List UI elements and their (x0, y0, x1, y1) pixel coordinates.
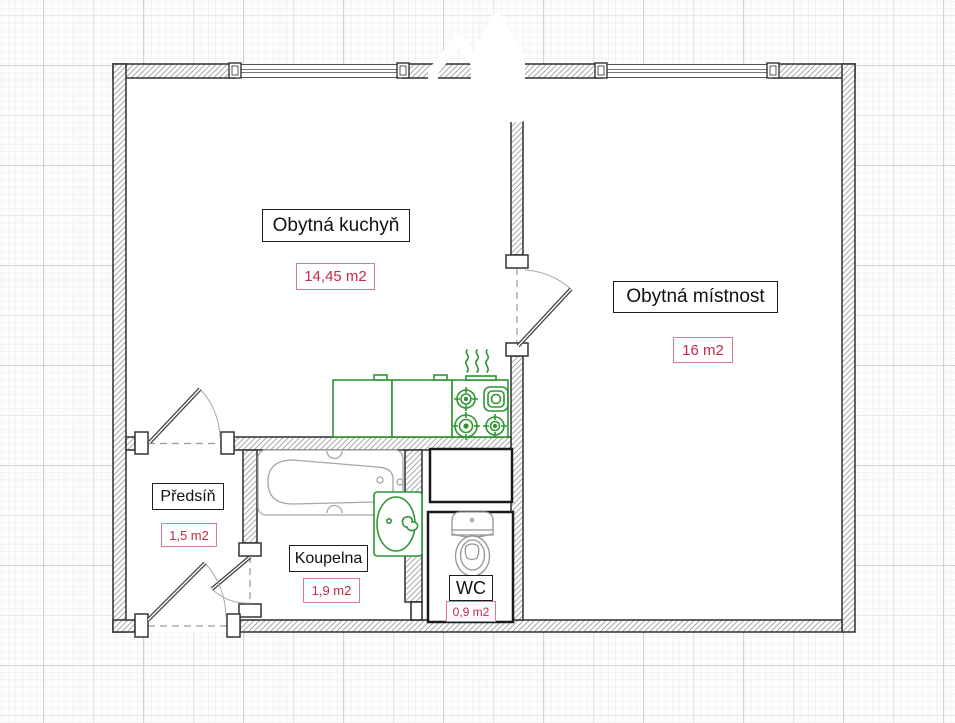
room-name: Obytná místnost (626, 286, 764, 308)
room-area-wc: 0,9 m2 (446, 601, 496, 622)
room-area-bathroom: 1,9 m2 (303, 578, 360, 603)
room-area: 0,9 m2 (453, 605, 490, 619)
room-area-hallway: 1,5 m2 (161, 523, 217, 547)
room-area: 1,9 m2 (312, 583, 352, 598)
room-label-hallway: Předsíň (152, 483, 224, 510)
room-area: 16 m2 (682, 342, 724, 359)
stove (452, 376, 508, 440)
toilet (452, 512, 493, 576)
room-label-living-room: Obytná místnost (613, 281, 778, 313)
room-name: Obytná kuchyň (273, 215, 400, 237)
kitchen-counter (333, 375, 452, 437)
floor-plan-canvas: Obytná kuchyň 14,45 m2 Obytná místnost 1… (0, 0, 955, 723)
room-area-kitchen: 14,45 m2 (296, 263, 375, 290)
room-name: Koupelna (295, 550, 363, 568)
room-label-wc: WC (449, 575, 493, 601)
room-area: 14,45 m2 (304, 268, 367, 285)
room-area: 1,5 m2 (169, 528, 209, 543)
room-name: Předsíň (160, 488, 215, 506)
room-label-bathroom: Koupelna (289, 545, 368, 572)
wc-wall-stub (411, 602, 422, 620)
ventilation-shaft (430, 449, 512, 502)
room-area-living-room: 16 m2 (673, 337, 733, 363)
window-living-room (595, 63, 779, 78)
room-label-kitchen: Obytná kuchyň (262, 209, 410, 242)
window-kitchen (229, 63, 409, 78)
washbasin (374, 492, 422, 556)
room-name: WC (456, 578, 486, 599)
